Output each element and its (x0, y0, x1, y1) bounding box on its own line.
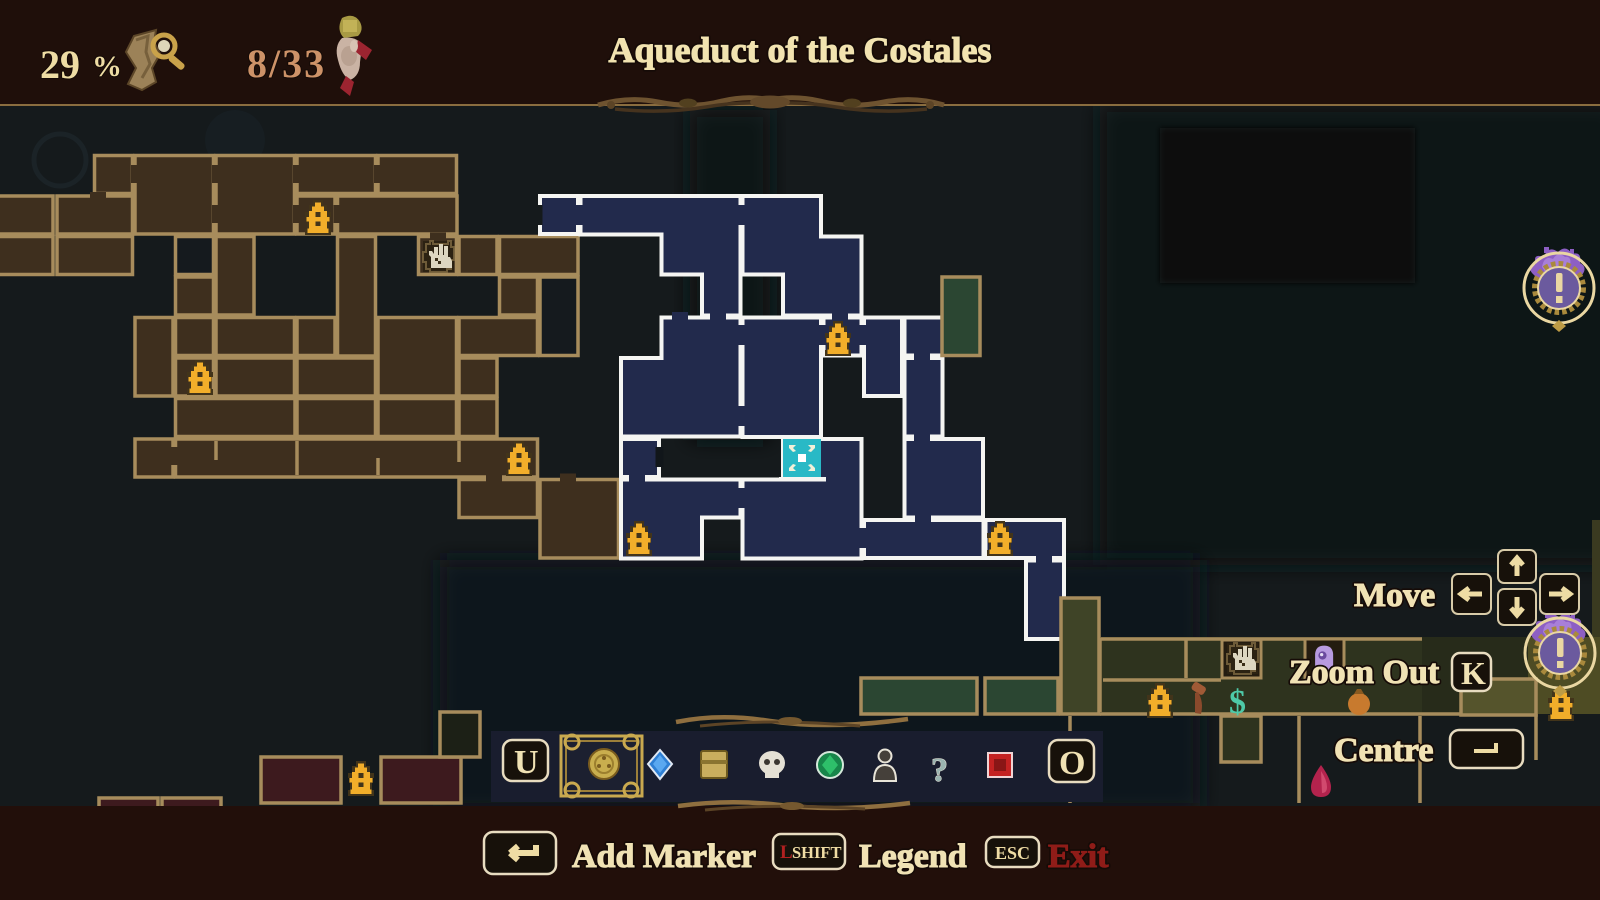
svg-text:Aqueduct of the Costales: Aqueduct of the Costales (609, 30, 992, 70)
svg-text:ESC: ESC (995, 843, 1030, 863)
svg-text:$: $ (1229, 684, 1246, 721)
svg-text:Centre: Centre (1334, 732, 1433, 769)
svg-text:SHIFT: SHIFT (792, 843, 842, 862)
svg-text:Exit: Exit (1048, 838, 1109, 875)
svg-text:Legend: Legend (859, 838, 967, 875)
svg-text:?: ? (931, 752, 948, 789)
svg-text:8/33: 8/33 (247, 41, 326, 86)
svg-text:Zoom Out: Zoom Out (1289, 654, 1440, 691)
svg-text:Add Marker: Add Marker (572, 838, 756, 875)
svg-text:L: L (780, 842, 793, 863)
svg-text:Move: Move (1354, 577, 1435, 614)
svg-text:U: U (514, 744, 539, 781)
svg-text:K: K (1461, 655, 1486, 691)
svg-text:O: O (1059, 745, 1085, 782)
